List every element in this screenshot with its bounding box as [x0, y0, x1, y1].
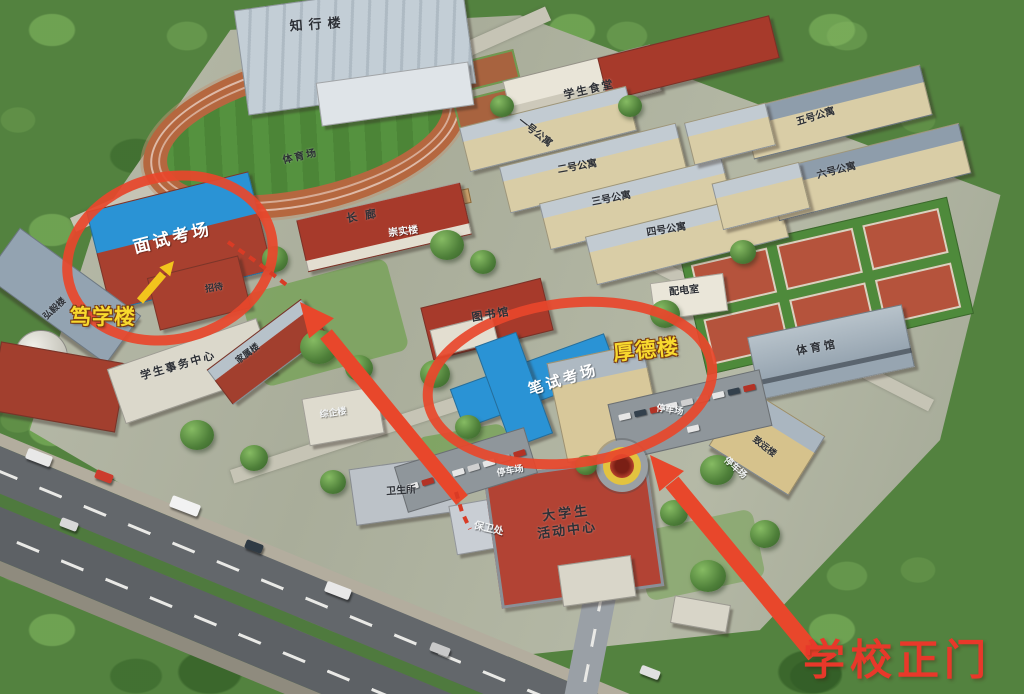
tree — [690, 560, 726, 592]
car — [467, 463, 480, 472]
car — [743, 383, 756, 392]
tree — [320, 470, 346, 494]
tree — [650, 300, 680, 328]
car — [452, 468, 465, 477]
tree — [470, 250, 496, 274]
label-peidianshi: 配电室 — [668, 280, 699, 298]
campus-map: 知行楼 学生食堂 一号公寓 二号公寓 三号公寓 四号公寓 五号公寓 六号公寓 体… — [0, 0, 1024, 694]
tree — [240, 445, 268, 471]
tree — [262, 246, 288, 272]
court — [862, 208, 948, 270]
tree — [345, 355, 373, 381]
car — [634, 408, 647, 417]
car — [727, 387, 740, 396]
tree — [420, 360, 450, 388]
label-duxuelou: 笃学楼 — [70, 301, 136, 331]
car — [498, 454, 511, 463]
court — [777, 228, 863, 290]
car — [513, 449, 526, 458]
tree — [180, 420, 214, 450]
tree — [430, 230, 464, 260]
car — [712, 390, 725, 399]
tree — [575, 455, 597, 475]
label-school-main-gate: 学校正门 — [803, 627, 991, 688]
tree — [750, 520, 780, 548]
car — [696, 394, 709, 403]
tree — [618, 95, 642, 117]
car — [687, 424, 700, 433]
flower-core — [610, 454, 634, 478]
tree — [300, 330, 338, 364]
label-weishengsuo: 卫生所 — [386, 480, 417, 497]
car — [482, 458, 495, 467]
car — [421, 477, 434, 486]
tree — [660, 500, 688, 526]
car — [436, 472, 449, 481]
roundabout-flowerbed — [596, 440, 648, 492]
label-zhixinglou: 知行楼 — [289, 12, 347, 35]
tree — [455, 415, 481, 439]
tree — [490, 95, 514, 117]
car — [618, 412, 631, 421]
tree — [730, 240, 756, 264]
